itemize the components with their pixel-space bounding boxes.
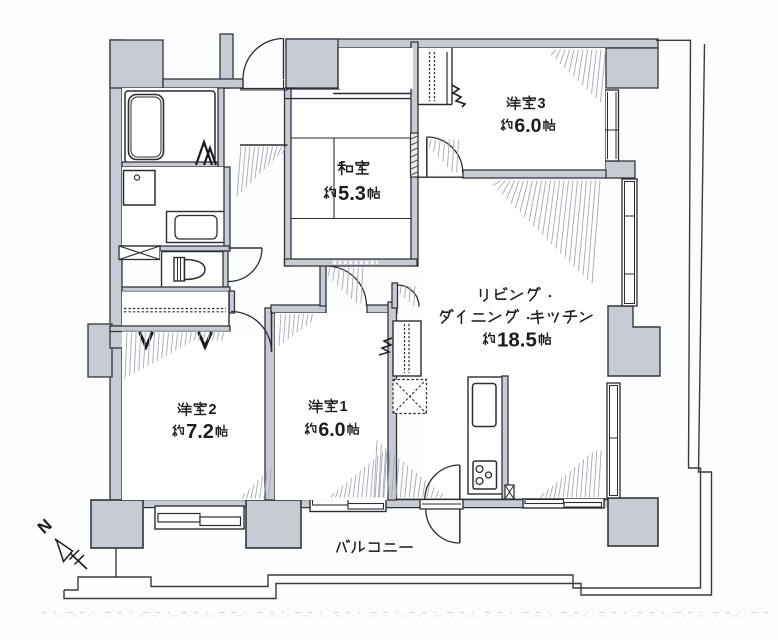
svg-text:5.3: 5.3 — [338, 183, 366, 205]
svg-text:7.2: 7.2 — [186, 421, 214, 443]
svg-text:3: 3 — [538, 96, 546, 112]
svg-text:6.0: 6.0 — [514, 115, 541, 137]
svg-text:1: 1 — [340, 399, 348, 415]
svg-text:2: 2 — [209, 402, 217, 418]
svg-text:18.5: 18.5 — [497, 328, 537, 351]
svg-text:6.0: 6.0 — [318, 419, 345, 441]
